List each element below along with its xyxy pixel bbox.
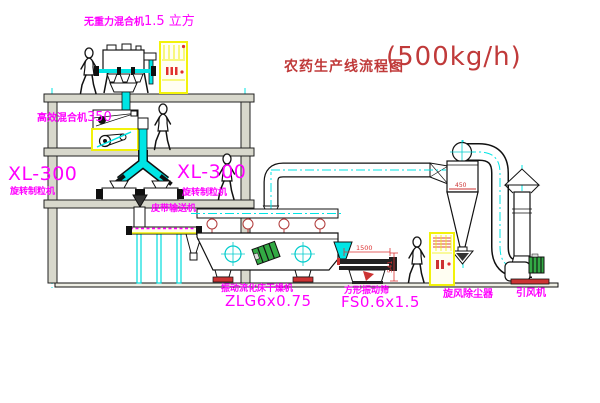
dim-450: 450 (455, 182, 467, 189)
label-fan: 引风机 (516, 289, 546, 299)
label-granulator-right-name: 旋转制粒机 (182, 189, 227, 198)
label-belt-conveyor: 皮带输送机 (151, 205, 196, 214)
high-mixer-spec: 350 (87, 110, 112, 125)
control-cabinet-right (430, 233, 454, 285)
diagram-title-capacity: (500kg/h) (386, 42, 522, 72)
high-mixer-name: 高效混合机 (37, 113, 87, 124)
gravity-mixer-spec: 1.5 立方 (144, 14, 195, 29)
label-high-mixer: 高效混合机350 (37, 108, 112, 124)
ground-line (55, 283, 558, 287)
label-gravity-mixer: 无重力混合机1.5 立方 (84, 12, 195, 28)
gravity-mixer-name: 无重力混合机 (84, 17, 144, 28)
label-cyclone: 旋风除尘器 (443, 290, 493, 300)
label-granulator-left-name: 旋转制粒机 (10, 188, 55, 197)
fluid-bed-dryer-graphic (191, 209, 352, 282)
flow-diagram-canvas: 1500 541 450 (0, 0, 600, 403)
label-dryer-model: ZLG6x0.75 (225, 294, 312, 309)
dryer-exhaust-duct (264, 163, 449, 214)
dim-1500: 1500 (356, 244, 373, 252)
label-granulator-right-model: XL-300 (177, 163, 246, 182)
control-cabinet-top (160, 42, 187, 93)
label-granulator-left-model: XL-300 (8, 165, 77, 184)
label-sieve-model: FS0.6x1.5 (341, 295, 420, 310)
belt-conveyor-graphic (126, 226, 202, 283)
dim-541: 541 (386, 261, 394, 273)
